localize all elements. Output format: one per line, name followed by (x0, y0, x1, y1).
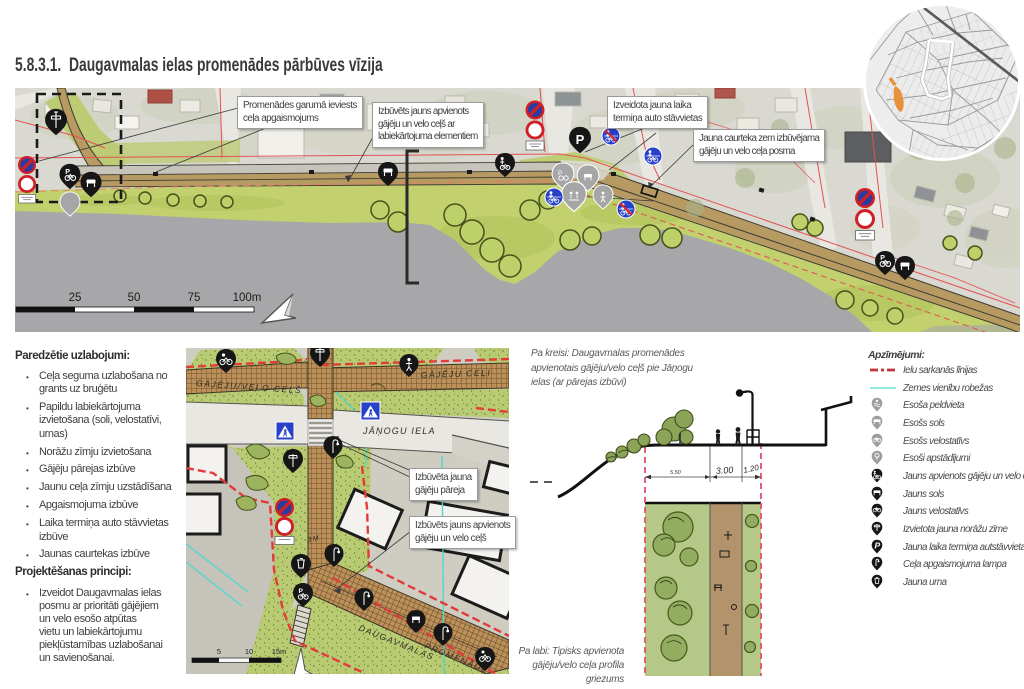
svg-text:10: 10 (245, 647, 253, 656)
svg-text:5.50: 5.50 (670, 470, 682, 476)
svg-text:25: 25 (69, 292, 82, 304)
svg-text:3.00: 3.00 (715, 465, 733, 476)
svg-text:15m: 15m (272, 647, 287, 656)
svg-text:50: 50 (128, 292, 141, 304)
svg-text:100m: 100m (233, 292, 262, 304)
svg-text:P: P (874, 540, 880, 550)
svg-text:75: 75 (188, 292, 201, 304)
svg-text:JĀŅOGU IELA: JĀŅOGU IELA (362, 426, 436, 436)
svg-text:1.20: 1.20 (743, 463, 761, 475)
svg-text:P: P (576, 132, 585, 147)
svg-text:5: 5 (217, 647, 221, 656)
